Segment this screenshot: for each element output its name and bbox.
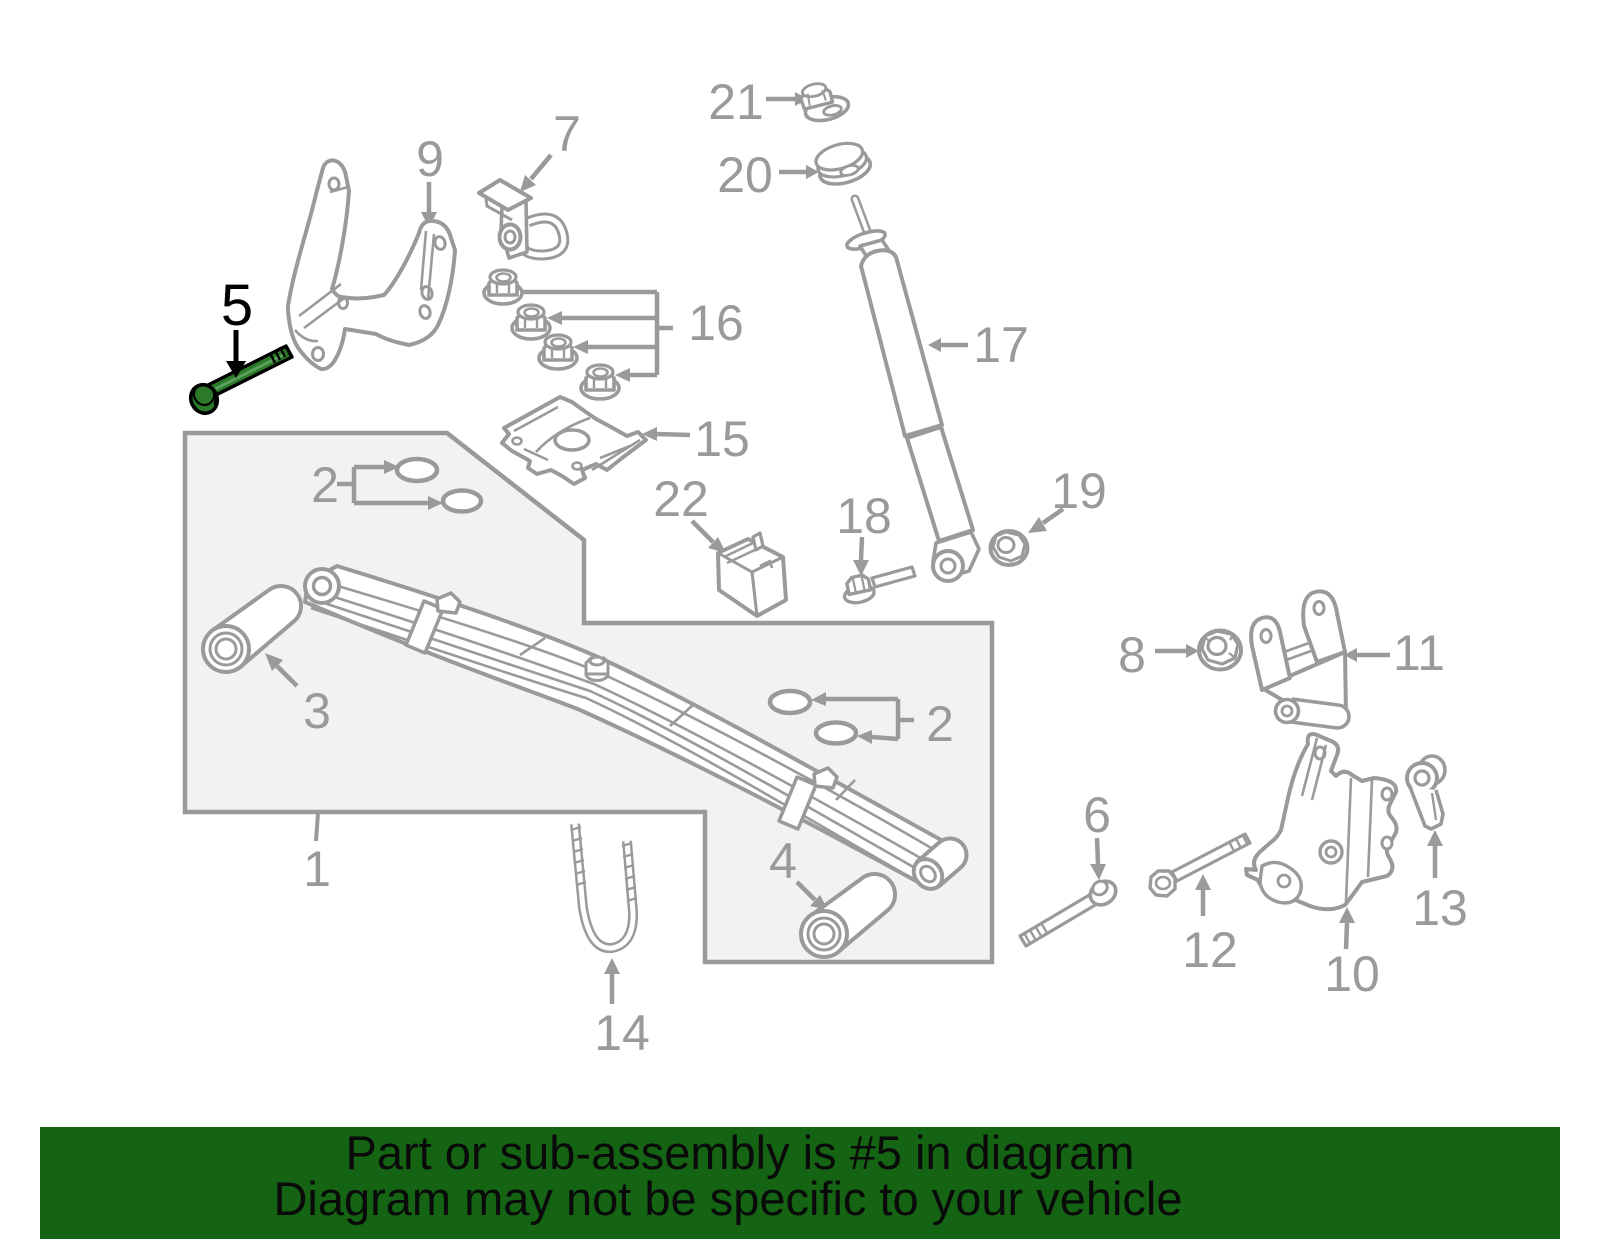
svg-text:6: 6 (1083, 787, 1111, 843)
svg-text:18: 18 (836, 488, 892, 544)
svg-text:16: 16 (688, 295, 744, 351)
svg-text:9: 9 (416, 131, 444, 187)
svg-text:2: 2 (311, 457, 339, 513)
svg-text:4: 4 (769, 833, 797, 889)
svg-text:8: 8 (1118, 627, 1146, 683)
svg-text:1: 1 (303, 841, 331, 897)
svg-text:22: 22 (653, 471, 709, 527)
svg-text:3: 3 (303, 683, 331, 739)
svg-text:14: 14 (594, 1005, 650, 1061)
svg-text:15: 15 (694, 411, 750, 467)
svg-text:20: 20 (717, 147, 773, 203)
svg-text:12: 12 (1182, 922, 1238, 978)
svg-text:13: 13 (1412, 880, 1468, 936)
svg-text:7: 7 (553, 106, 581, 162)
svg-text:2: 2 (926, 696, 954, 752)
svg-text:5: 5 (221, 273, 253, 338)
svg-text:19: 19 (1051, 463, 1107, 519)
svg-text:Diagram may not be specific to: Diagram may not be specific to your vehi… (273, 1172, 1182, 1225)
svg-text:21: 21 (708, 74, 764, 130)
svg-text:17: 17 (973, 317, 1029, 373)
svg-text:10: 10 (1324, 946, 1380, 1002)
svg-text:11: 11 (1393, 625, 1445, 681)
